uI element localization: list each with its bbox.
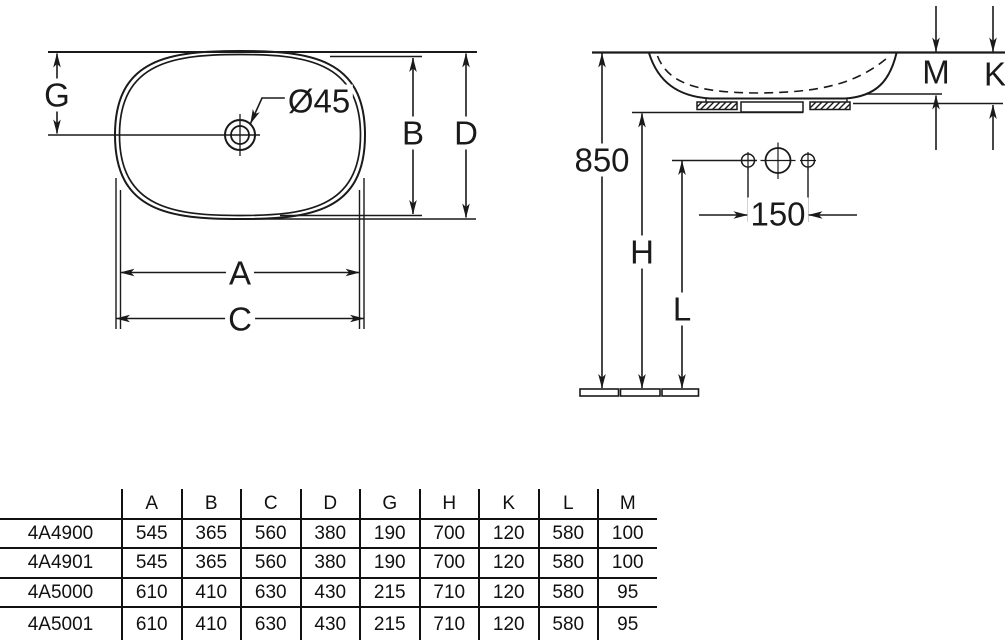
value-cell: 610 bbox=[121, 579, 181, 609]
dim-label-c: C bbox=[225, 303, 255, 336]
value-cell: 410 bbox=[181, 579, 241, 609]
value-cell: 630 bbox=[240, 579, 300, 609]
value-cell: 190 bbox=[359, 520, 419, 550]
value-cell: 710 bbox=[419, 579, 479, 609]
column-header-k: K bbox=[478, 489, 538, 520]
dim-label-l: L bbox=[670, 293, 694, 326]
value-cell: 120 bbox=[478, 520, 538, 550]
value-cell: 95 bbox=[597, 608, 657, 640]
model-cell: 4A5001 bbox=[0, 608, 121, 640]
waste-fitting bbox=[741, 102, 803, 112]
value-cell: 100 bbox=[597, 549, 657, 579]
value-cell: 580 bbox=[538, 579, 598, 609]
column-header-h: H bbox=[419, 489, 479, 520]
dim-label-m: M bbox=[919, 56, 953, 89]
washbasin-spec-sheet: G B D A C Ø45 850 H L M K 150 A B C D G … bbox=[0, 0, 1005, 640]
value-cell: 710 bbox=[419, 608, 479, 640]
column-header-a: A bbox=[121, 489, 181, 520]
value-cell: 630 bbox=[240, 608, 300, 640]
column-header-c: C bbox=[240, 489, 300, 520]
install-height-label: 850 bbox=[571, 144, 632, 177]
dim-label-h: H bbox=[627, 236, 657, 269]
value-cell: 365 bbox=[181, 520, 241, 550]
column-header-m: M bbox=[597, 489, 657, 520]
value-cell: 95 bbox=[597, 579, 657, 609]
value-cell: 120 bbox=[478, 579, 538, 609]
column-header-d: D bbox=[300, 489, 360, 520]
value-cell: 100 bbox=[597, 520, 657, 550]
top-view bbox=[48, 51, 477, 329]
mounting-pad-right bbox=[810, 102, 850, 110]
spec-table: A B C D G H K L M 4A4900 545 365 560 380… bbox=[0, 489, 657, 640]
value-cell: 430 bbox=[300, 579, 360, 609]
value-cell: 120 bbox=[478, 549, 538, 579]
bowl-inner-dashed bbox=[658, 56, 890, 93]
value-cell: 545 bbox=[121, 549, 181, 579]
value-cell: 545 bbox=[121, 520, 181, 550]
value-cell: 120 bbox=[478, 608, 538, 640]
value-cell: 190 bbox=[359, 549, 419, 579]
diameter-leader-arrow bbox=[251, 98, 287, 124]
column-header-l: L bbox=[538, 489, 598, 520]
value-cell: 430 bbox=[300, 608, 360, 640]
dim-label-a: A bbox=[226, 257, 254, 290]
value-cell: 580 bbox=[538, 520, 598, 550]
dim-label-g: G bbox=[41, 79, 73, 112]
column-header-blank bbox=[0, 489, 121, 520]
model-cell: 4A4901 bbox=[0, 549, 121, 579]
dim-label-d: D bbox=[451, 117, 481, 150]
model-cell: 4A5000 bbox=[0, 579, 121, 609]
model-cell: 4A4900 bbox=[0, 520, 121, 550]
value-cell: 700 bbox=[419, 520, 479, 550]
dim-label-b: B bbox=[399, 117, 427, 150]
value-cell: 365 bbox=[181, 549, 241, 579]
value-cell: 380 bbox=[300, 520, 360, 550]
tap-hole-spacing-label: 150 bbox=[747, 198, 808, 231]
floor-line bbox=[580, 389, 699, 396]
hole-diameter-label: Ø45 bbox=[285, 85, 353, 118]
column-header-g: G bbox=[359, 489, 419, 520]
value-cell: 580 bbox=[538, 608, 598, 640]
value-cell: 610 bbox=[121, 608, 181, 640]
value-cell: 410 bbox=[181, 608, 241, 640]
value-cell: 580 bbox=[538, 549, 598, 579]
value-cell: 215 bbox=[359, 579, 419, 609]
value-cell: 560 bbox=[240, 549, 300, 579]
value-cell: 560 bbox=[240, 520, 300, 550]
column-header-b: B bbox=[181, 489, 241, 520]
value-cell: 380 bbox=[300, 549, 360, 579]
mounting-pad-left bbox=[697, 102, 737, 110]
value-cell: 700 bbox=[419, 549, 479, 579]
dim-label-k: K bbox=[981, 58, 1005, 91]
value-cell: 215 bbox=[359, 608, 419, 640]
